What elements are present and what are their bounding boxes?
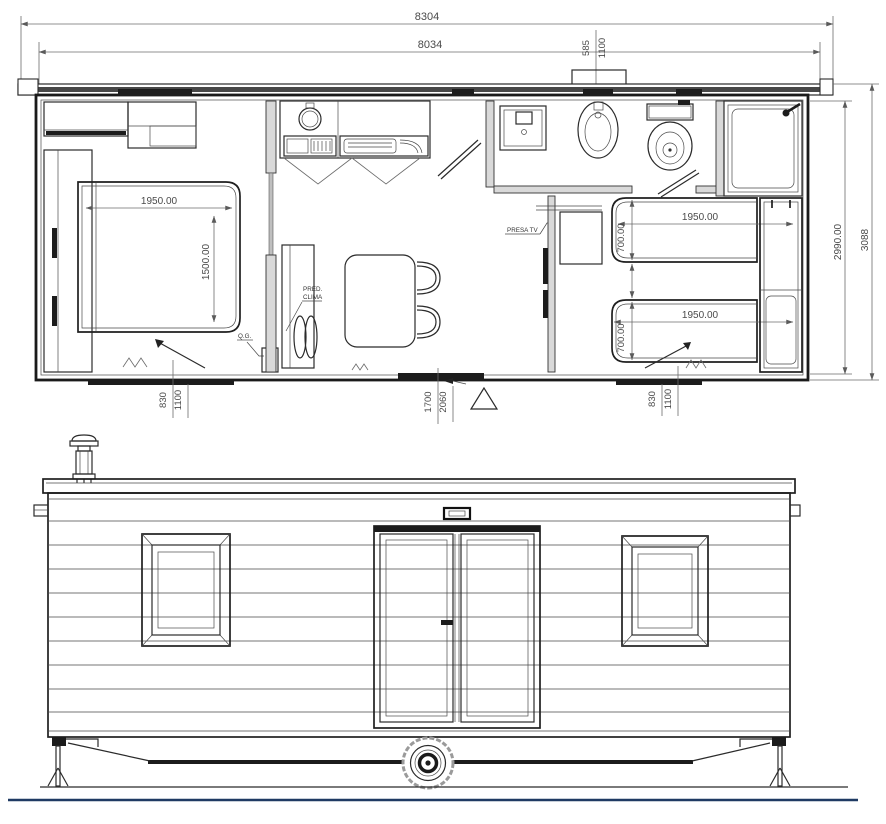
elevation-view xyxy=(8,435,858,800)
jack-mount-left xyxy=(52,737,66,746)
dim-roof-vent-a: 585 xyxy=(581,40,592,56)
dim-master-bed-width: 1500.00 xyxy=(201,243,212,280)
dining-area: PRED. CLIMA xyxy=(282,245,440,368)
dim-roof-vent-b: 1100 xyxy=(597,38,608,58)
kitchen xyxy=(280,101,494,187)
dim-entrance-a: 1700 xyxy=(423,391,434,412)
side-dimensions: 2990.00 3088 xyxy=(810,84,879,380)
twin-bed-top xyxy=(612,198,757,262)
chimney xyxy=(70,435,98,483)
mobile-home-drawing: 8304 8034 585 1100 xyxy=(0,0,886,824)
label-presa-tv: PRESA TV xyxy=(507,227,538,234)
overhead-cabinet xyxy=(128,102,196,148)
dim-door-left-a: 830 xyxy=(158,392,169,408)
door-leaf-left xyxy=(380,534,453,722)
partition-kitchen xyxy=(266,101,276,372)
door-leaf xyxy=(158,342,205,368)
dim-body-width: 2990.00 xyxy=(833,223,844,260)
dim-door-right-b: 1100 xyxy=(663,389,674,409)
roof xyxy=(43,479,795,493)
shower-cabin xyxy=(724,101,802,196)
plan-window-mark xyxy=(452,89,474,96)
step-right xyxy=(616,380,702,385)
door-leaf xyxy=(645,345,688,368)
window-left xyxy=(142,534,230,646)
label-qg: Q.G. xyxy=(238,333,252,340)
window-right xyxy=(622,536,708,646)
interior-door-leaf xyxy=(438,140,481,179)
floor-plan: 8304 8034 585 1100 xyxy=(18,11,879,424)
twin-bedroom: PRESA TV 1950.00 700.00 1950.00 700.00 xyxy=(352,196,802,372)
dining-table xyxy=(345,255,415,347)
roof-vent xyxy=(572,70,626,85)
toilet xyxy=(647,100,693,170)
dim-overall-length: 8304 xyxy=(415,11,439,23)
door-leaf-right xyxy=(461,534,534,722)
dim-twin-top-length: 1950.00 xyxy=(682,212,719,223)
bottom-dimensions: 830 1100 1700 2060 830 1100 xyxy=(158,360,678,424)
plan-window-mark xyxy=(583,89,613,96)
chair xyxy=(417,262,440,294)
vent-grille xyxy=(444,508,470,519)
master-bedroom: 1950.00 1500.00 Q.G. xyxy=(44,102,278,372)
dim-twin-bottom-length: 1950.00 xyxy=(682,310,719,321)
label-clima-2: CLIMA xyxy=(303,294,323,301)
dim-entrance-b: 2060 xyxy=(438,391,449,412)
exterior-walls xyxy=(36,89,808,385)
technical-drawing-sheet: 8304 8034 585 1100 xyxy=(0,0,886,824)
wardrobe-column xyxy=(44,150,92,372)
ac-coil xyxy=(294,316,306,358)
pocket-door xyxy=(269,173,273,255)
wheel xyxy=(403,738,453,788)
dim-body-length: 8034 xyxy=(418,39,442,51)
ac-coil xyxy=(305,316,317,358)
chair xyxy=(417,306,440,338)
bathroom-door-leaf xyxy=(658,170,699,197)
tv-mark xyxy=(543,248,548,284)
entry-door xyxy=(374,526,540,728)
door-handle xyxy=(441,620,453,625)
support-leg-left xyxy=(56,746,60,786)
side-pipe-left xyxy=(34,505,48,516)
step-entrance xyxy=(398,373,484,381)
dim-master-bed-length: 1950.00 xyxy=(141,196,178,207)
kitchen-counter xyxy=(280,101,430,158)
desk xyxy=(560,212,602,264)
dim-twin-bottom-width: 700.00 xyxy=(616,323,627,352)
plan-window-mark xyxy=(676,89,702,96)
clima-cabinet xyxy=(282,245,314,368)
entrance-marker-triangle xyxy=(471,388,497,409)
jack-mount-right xyxy=(772,737,786,746)
label-clima-1: PRED. xyxy=(303,286,322,293)
plan-window-mark xyxy=(118,89,192,96)
side-pipe-right xyxy=(790,505,800,516)
dim-overall-width: 3088 xyxy=(860,228,871,251)
pedestal-sink xyxy=(578,102,618,158)
support-leg-right xyxy=(778,746,782,786)
dim-twin-top-width: 700.00 xyxy=(616,223,627,252)
bathroom xyxy=(494,100,802,197)
top-dimensions: 8304 8034 585 1100 xyxy=(21,11,833,95)
dim-door-right-a: 830 xyxy=(647,391,658,407)
overhead-cabinet xyxy=(44,102,128,136)
dim-door-left-b: 1100 xyxy=(173,390,184,410)
step-left xyxy=(88,380,234,385)
